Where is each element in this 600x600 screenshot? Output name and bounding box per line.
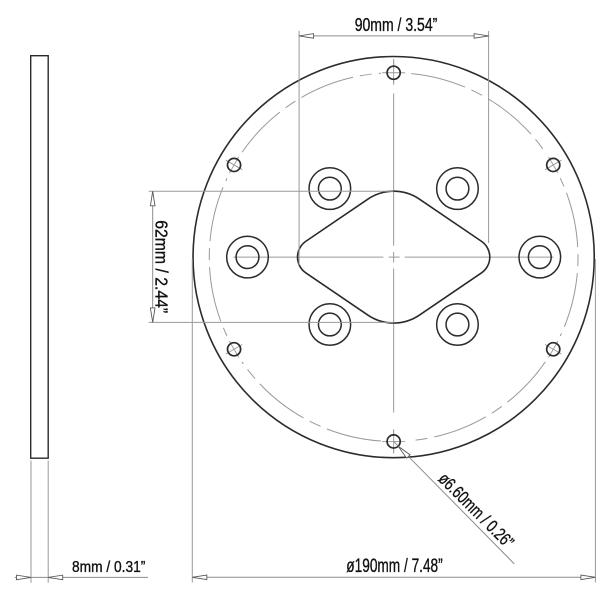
svg-text:62mm / 2.44”: 62mm / 2.44”	[151, 220, 171, 313]
svg-text:ø190mm / 7.48”: ø190mm / 7.48”	[346, 555, 442, 577]
svg-text:90mm / 3.54”: 90mm / 3.54”	[355, 15, 438, 35]
svg-text:8mm / 0.31”: 8mm / 0.31”	[72, 559, 145, 576]
